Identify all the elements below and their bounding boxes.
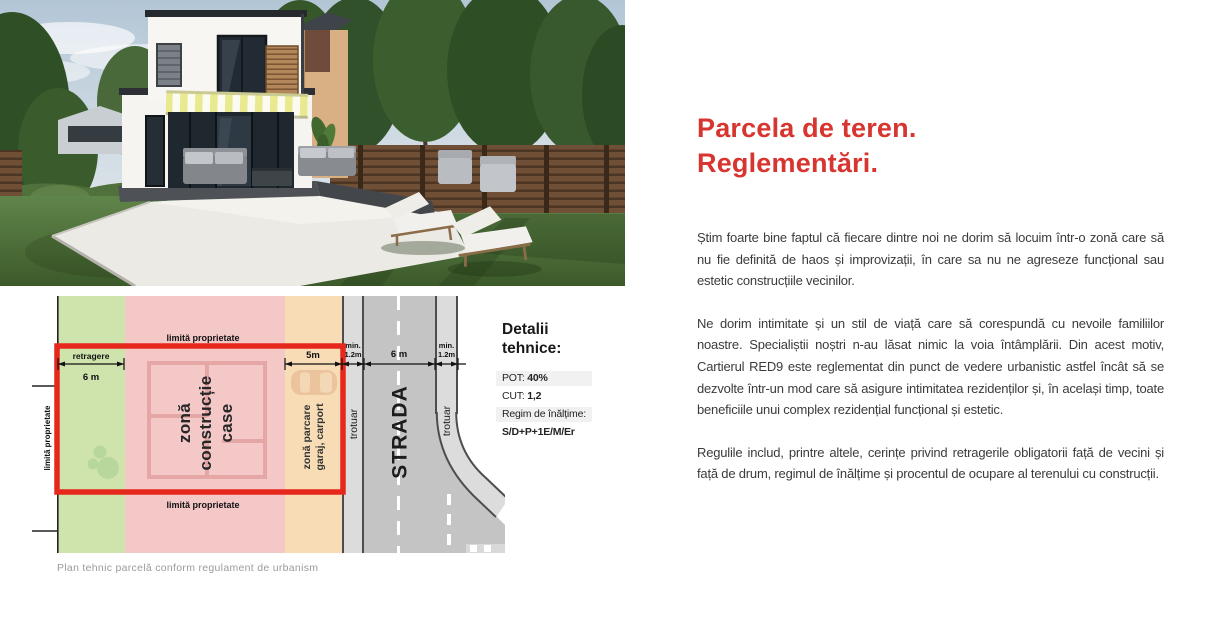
diagram-caption: Plan tehnic parcelă conform regulament d… — [57, 562, 318, 574]
label-min-left-1: min. — [345, 341, 360, 350]
label-min-right-2: 1.2m — [438, 350, 455, 359]
pot-row: POT: 40% — [496, 371, 592, 386]
side-window — [146, 116, 164, 186]
label-sidewalk-left: trotuar — [348, 408, 360, 439]
svg-text:garaj, carport: garaj, carport — [314, 403, 326, 471]
paragraph-3: Regulile includ, printre altele, cerințe… — [697, 442, 1164, 485]
label-limita-bottom: limită proprietate — [166, 500, 239, 510]
cut-row: CUT: 1,2 — [496, 389, 592, 404]
label-sidewalk-right: trotuar — [441, 405, 453, 436]
house-render-illustration — [0, 0, 625, 286]
label-zone-parking: zonă parcare garaj, carport — [301, 403, 326, 471]
parcel-plan-svg: limită proprietate limită proprietate li… — [0, 292, 505, 554]
house-photo — [0, 0, 625, 286]
regim-value-row: S/D+P+1E/M/Er — [496, 425, 592, 440]
heading-line-1: Detalii — [496, 320, 592, 339]
technical-details-heading: Detalii tehnice: — [496, 320, 592, 358]
technical-details: Detalii tehnice: POT: 40% CUT: 1,2 Regim… — [496, 320, 592, 443]
parcel-plan-diagram: limită proprietate limită proprietate li… — [0, 292, 505, 554]
street-corner — [466, 544, 505, 553]
title-line-2: Reglementări. — [697, 146, 1164, 181]
article: Parcela de teren. Reglementări. Știm foa… — [697, 111, 1164, 506]
wood-slat-panel — [266, 46, 298, 100]
svg-text:construcție: construcție — [196, 376, 215, 471]
wooden-fence-left — [0, 150, 22, 200]
regim-row: Regim de înălțime: — [496, 407, 592, 422]
label-min-right-1: min. — [439, 341, 454, 350]
paragraph-2: Ne dorim intimitate și un stil de viață … — [697, 313, 1164, 421]
regim-label: Regim de înălțime: — [502, 408, 586, 420]
page-title: Parcela de teren. Reglementări. — [697, 111, 1164, 181]
car-icon — [291, 370, 337, 395]
house-upper-floor — [145, 10, 307, 100]
title-line-1: Parcela de teren. — [697, 111, 1164, 146]
cut-label: CUT: — [502, 390, 525, 402]
green-zone — [57, 296, 125, 553]
regim-value: S/D+P+1E/M/Er — [502, 426, 575, 438]
coffee-table — [252, 168, 292, 186]
cut-value: 1,2 — [527, 390, 541, 402]
label-street: STRADA — [389, 385, 412, 479]
svg-text:zonă parcare: zonă parcare — [301, 404, 313, 469]
svg-text:zonă: zonă — [175, 403, 194, 443]
brochure-page: limită proprietate limită proprietate li… — [0, 0, 1230, 625]
paragraph-1: Știm foarte bine faptul că fiecare dintr… — [697, 227, 1164, 292]
outdoor-sofa — [183, 148, 247, 184]
label-limita-top: limită proprietate — [166, 333, 239, 343]
label-limita-left: limită proprietate — [43, 405, 52, 470]
label-street-width: 6 m — [391, 349, 407, 360]
label-retragere-value: 6 m — [83, 372, 99, 383]
pot-label: POT: — [502, 372, 525, 384]
label-min-left-2: 1.2m — [344, 350, 361, 359]
label-retragere: retragere — [73, 351, 110, 361]
svg-text:case: case — [217, 403, 236, 442]
label-parking-width: 5m — [306, 350, 320, 361]
heading-line-2: tehnice: — [496, 339, 592, 358]
street — [364, 296, 505, 553]
pot-value: 40% — [527, 372, 547, 384]
